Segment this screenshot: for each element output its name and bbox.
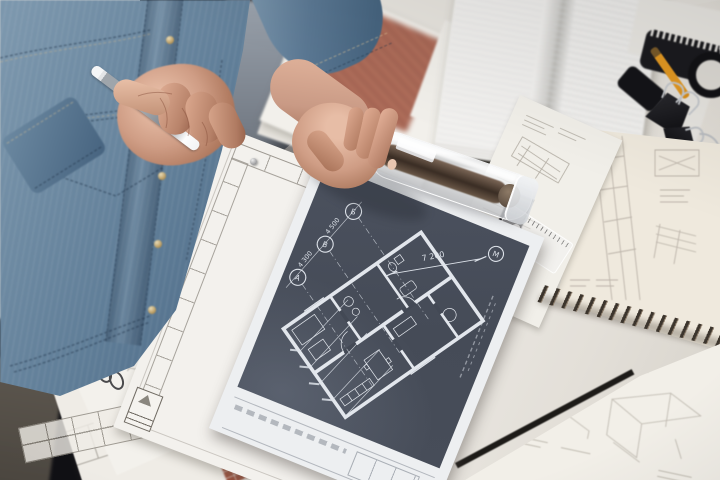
grid-bubble-letter: А xyxy=(294,273,303,284)
leader-callouts xyxy=(275,287,409,426)
metal-pin xyxy=(250,158,257,165)
plan-walls xyxy=(282,230,484,419)
grid-bubble-letter: В xyxy=(321,240,329,250)
grid-bubble-letter: М xyxy=(491,249,500,260)
hand-creases xyxy=(108,78,238,188)
logo-glyph xyxy=(138,393,155,407)
grid-bubble-letter: Б xyxy=(349,207,357,217)
dimension-label-axis-1: 4 500 xyxy=(324,216,342,235)
photo-architect-desk: 7 200 М Б В А 4 500 4 300 xyxy=(0,0,720,480)
